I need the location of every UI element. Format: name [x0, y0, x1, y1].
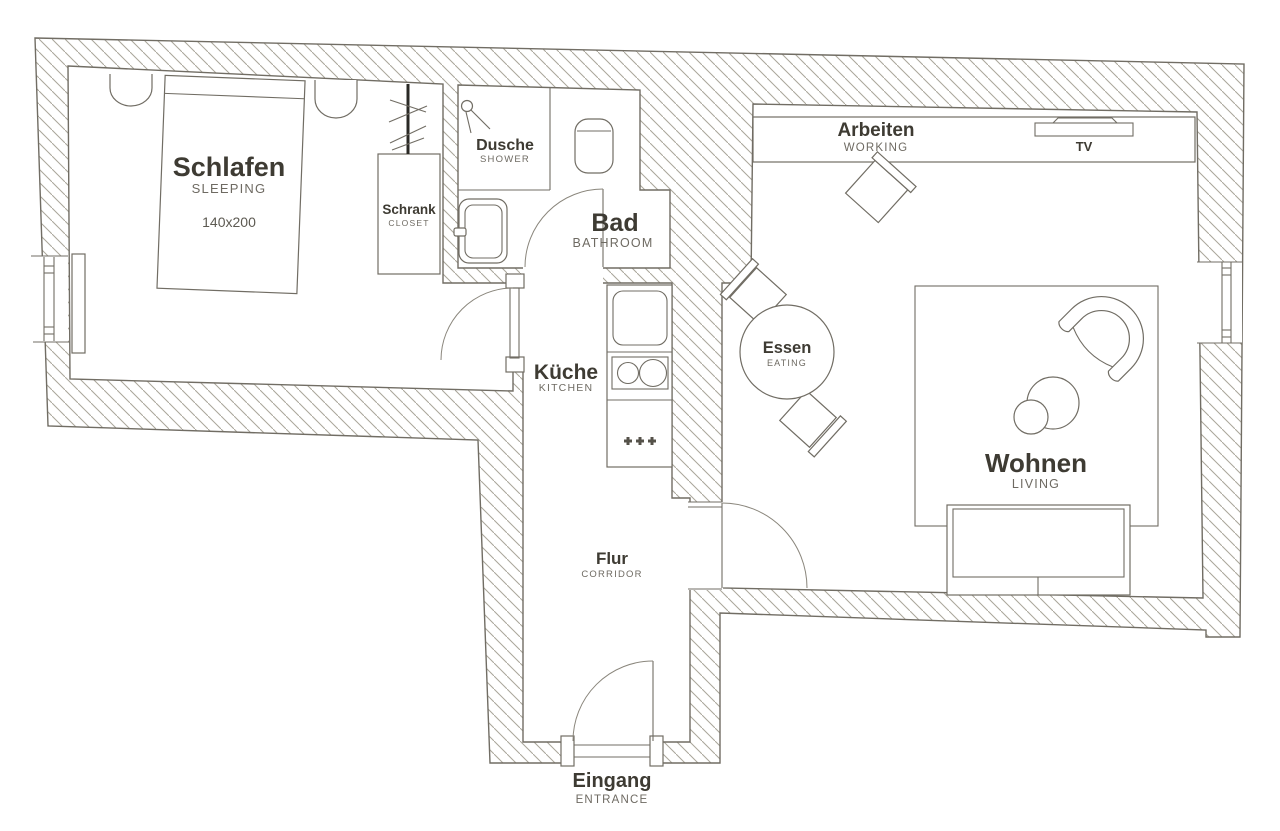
living-doorway — [688, 502, 723, 590]
label-entrance-en: ENTRANCE — [576, 794, 649, 806]
desk — [753, 117, 1195, 162]
label-shower-de: Dusche — [476, 137, 534, 154]
sofa — [947, 505, 1130, 595]
label-living-de: Wohnen — [985, 448, 1087, 478]
label-eating-en: EATING — [767, 358, 807, 368]
label-bathroom-en: BATHROOM — [573, 236, 654, 250]
label-bathroom-de: Bad — [591, 209, 638, 237]
shower-head-icon — [462, 101, 473, 112]
radiator — [72, 254, 85, 353]
label-living-en: LIVING — [1012, 477, 1060, 491]
bathroom-doorway — [523, 264, 603, 286]
label-closet-en: CLOSET — [388, 218, 429, 228]
label-bed-size: 140x200 — [202, 214, 256, 230]
entrance-doorway — [563, 740, 660, 764]
label-sleeping-en: SLEEPING — [192, 181, 267, 196]
label-corridor-de: Flur — [596, 549, 628, 568]
label-sleeping-de: Schlafen — [173, 152, 286, 182]
bedroom-doorway — [509, 286, 525, 362]
label-closet-de: Schrank — [382, 202, 436, 217]
label-corridor-en: CORRIDOR — [581, 569, 642, 580]
label-kitchen-de: Küche — [534, 361, 598, 384]
sink-icon — [454, 199, 507, 263]
bedroom-window — [30, 254, 85, 353]
label-tv: TV — [1076, 139, 1093, 154]
label-shower-en: SHOWER — [480, 154, 530, 165]
label-entrance-de: Eingang — [573, 770, 652, 792]
nightstand-left — [110, 74, 152, 106]
label-working-en: WORKING — [844, 142, 909, 154]
kitchen-counter — [607, 285, 672, 467]
floor-plan: Schlafen SLEEPING 140x200 Schrank CLOSET… — [0, 0, 1280, 831]
floor-plan-canvas: Schlafen SLEEPING 140x200 Schrank CLOSET… — [0, 0, 1280, 831]
living-window — [1197, 262, 1242, 343]
pouf-small — [1014, 400, 1048, 434]
label-kitchen-en: KITCHEN — [539, 382, 594, 394]
label-working-de: Arbeiten — [837, 120, 914, 141]
toilet-icon — [575, 119, 613, 173]
label-eating-de: Essen — [763, 339, 812, 357]
nightstand-right — [315, 80, 357, 118]
kitchen-symbols-icon — [624, 437, 656, 445]
